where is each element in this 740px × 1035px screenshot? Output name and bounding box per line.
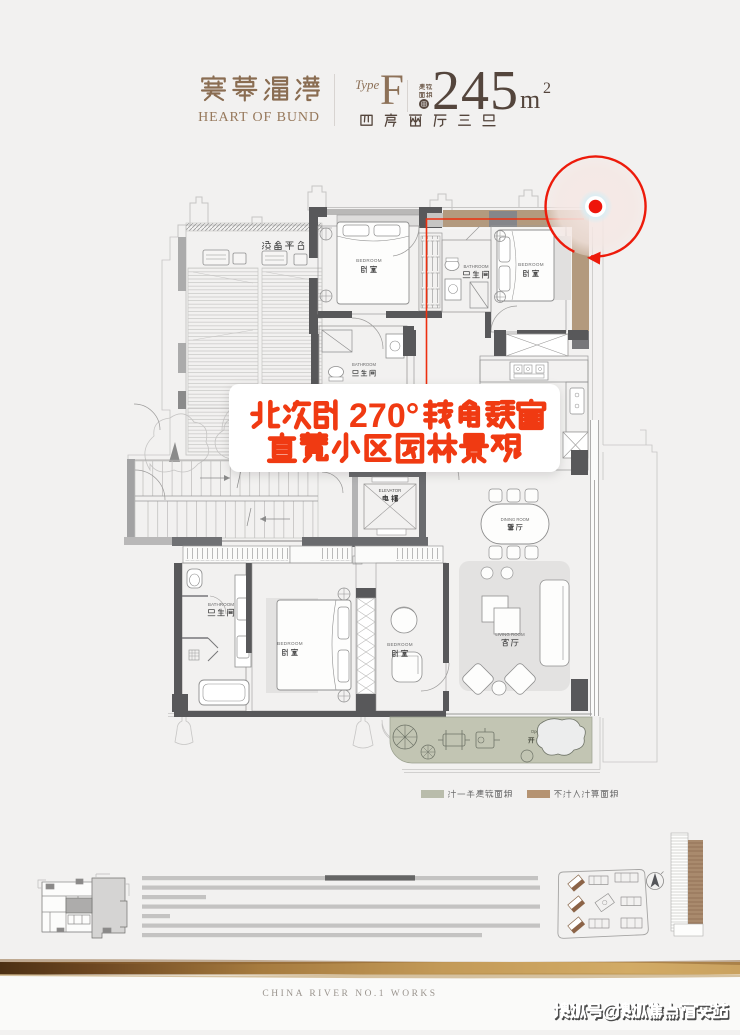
svg-text:BEDROOM: BEDROOM — [387, 642, 413, 647]
svg-text:BEDROOM: BEDROOM — [277, 641, 303, 646]
svg-text:LIVING ROOM: LIVING ROOM — [495, 632, 525, 637]
svg-text:HEART OF BUND: HEART OF BUND — [198, 110, 320, 125]
svg-text:245: 245 — [432, 60, 519, 122]
svg-text:m: m — [520, 85, 540, 114]
svg-text:270°: 270° — [349, 397, 419, 435]
svg-text:Type: Type — [355, 77, 380, 92]
svg-text:DINING ROOM: DINING ROOM — [501, 517, 530, 522]
svg-text:ELEVATOR: ELEVATOR — [379, 488, 402, 493]
svg-text:BATHROOM: BATHROOM — [208, 602, 234, 607]
svg-text:BATHROOM: BATHROOM — [352, 362, 376, 367]
svg-text:CHINA RIVER NO.1 WORKS: CHINA RIVER NO.1 WORKS — [262, 989, 437, 999]
svg-text:F: F — [380, 67, 404, 114]
svg-text:BEDROOM: BEDROOM — [518, 262, 544, 267]
svg-text:BEDROOM: BEDROOM — [356, 258, 382, 263]
svg-text:2: 2 — [543, 80, 551, 97]
svg-text:BATHROOM: BATHROOM — [463, 264, 488, 269]
